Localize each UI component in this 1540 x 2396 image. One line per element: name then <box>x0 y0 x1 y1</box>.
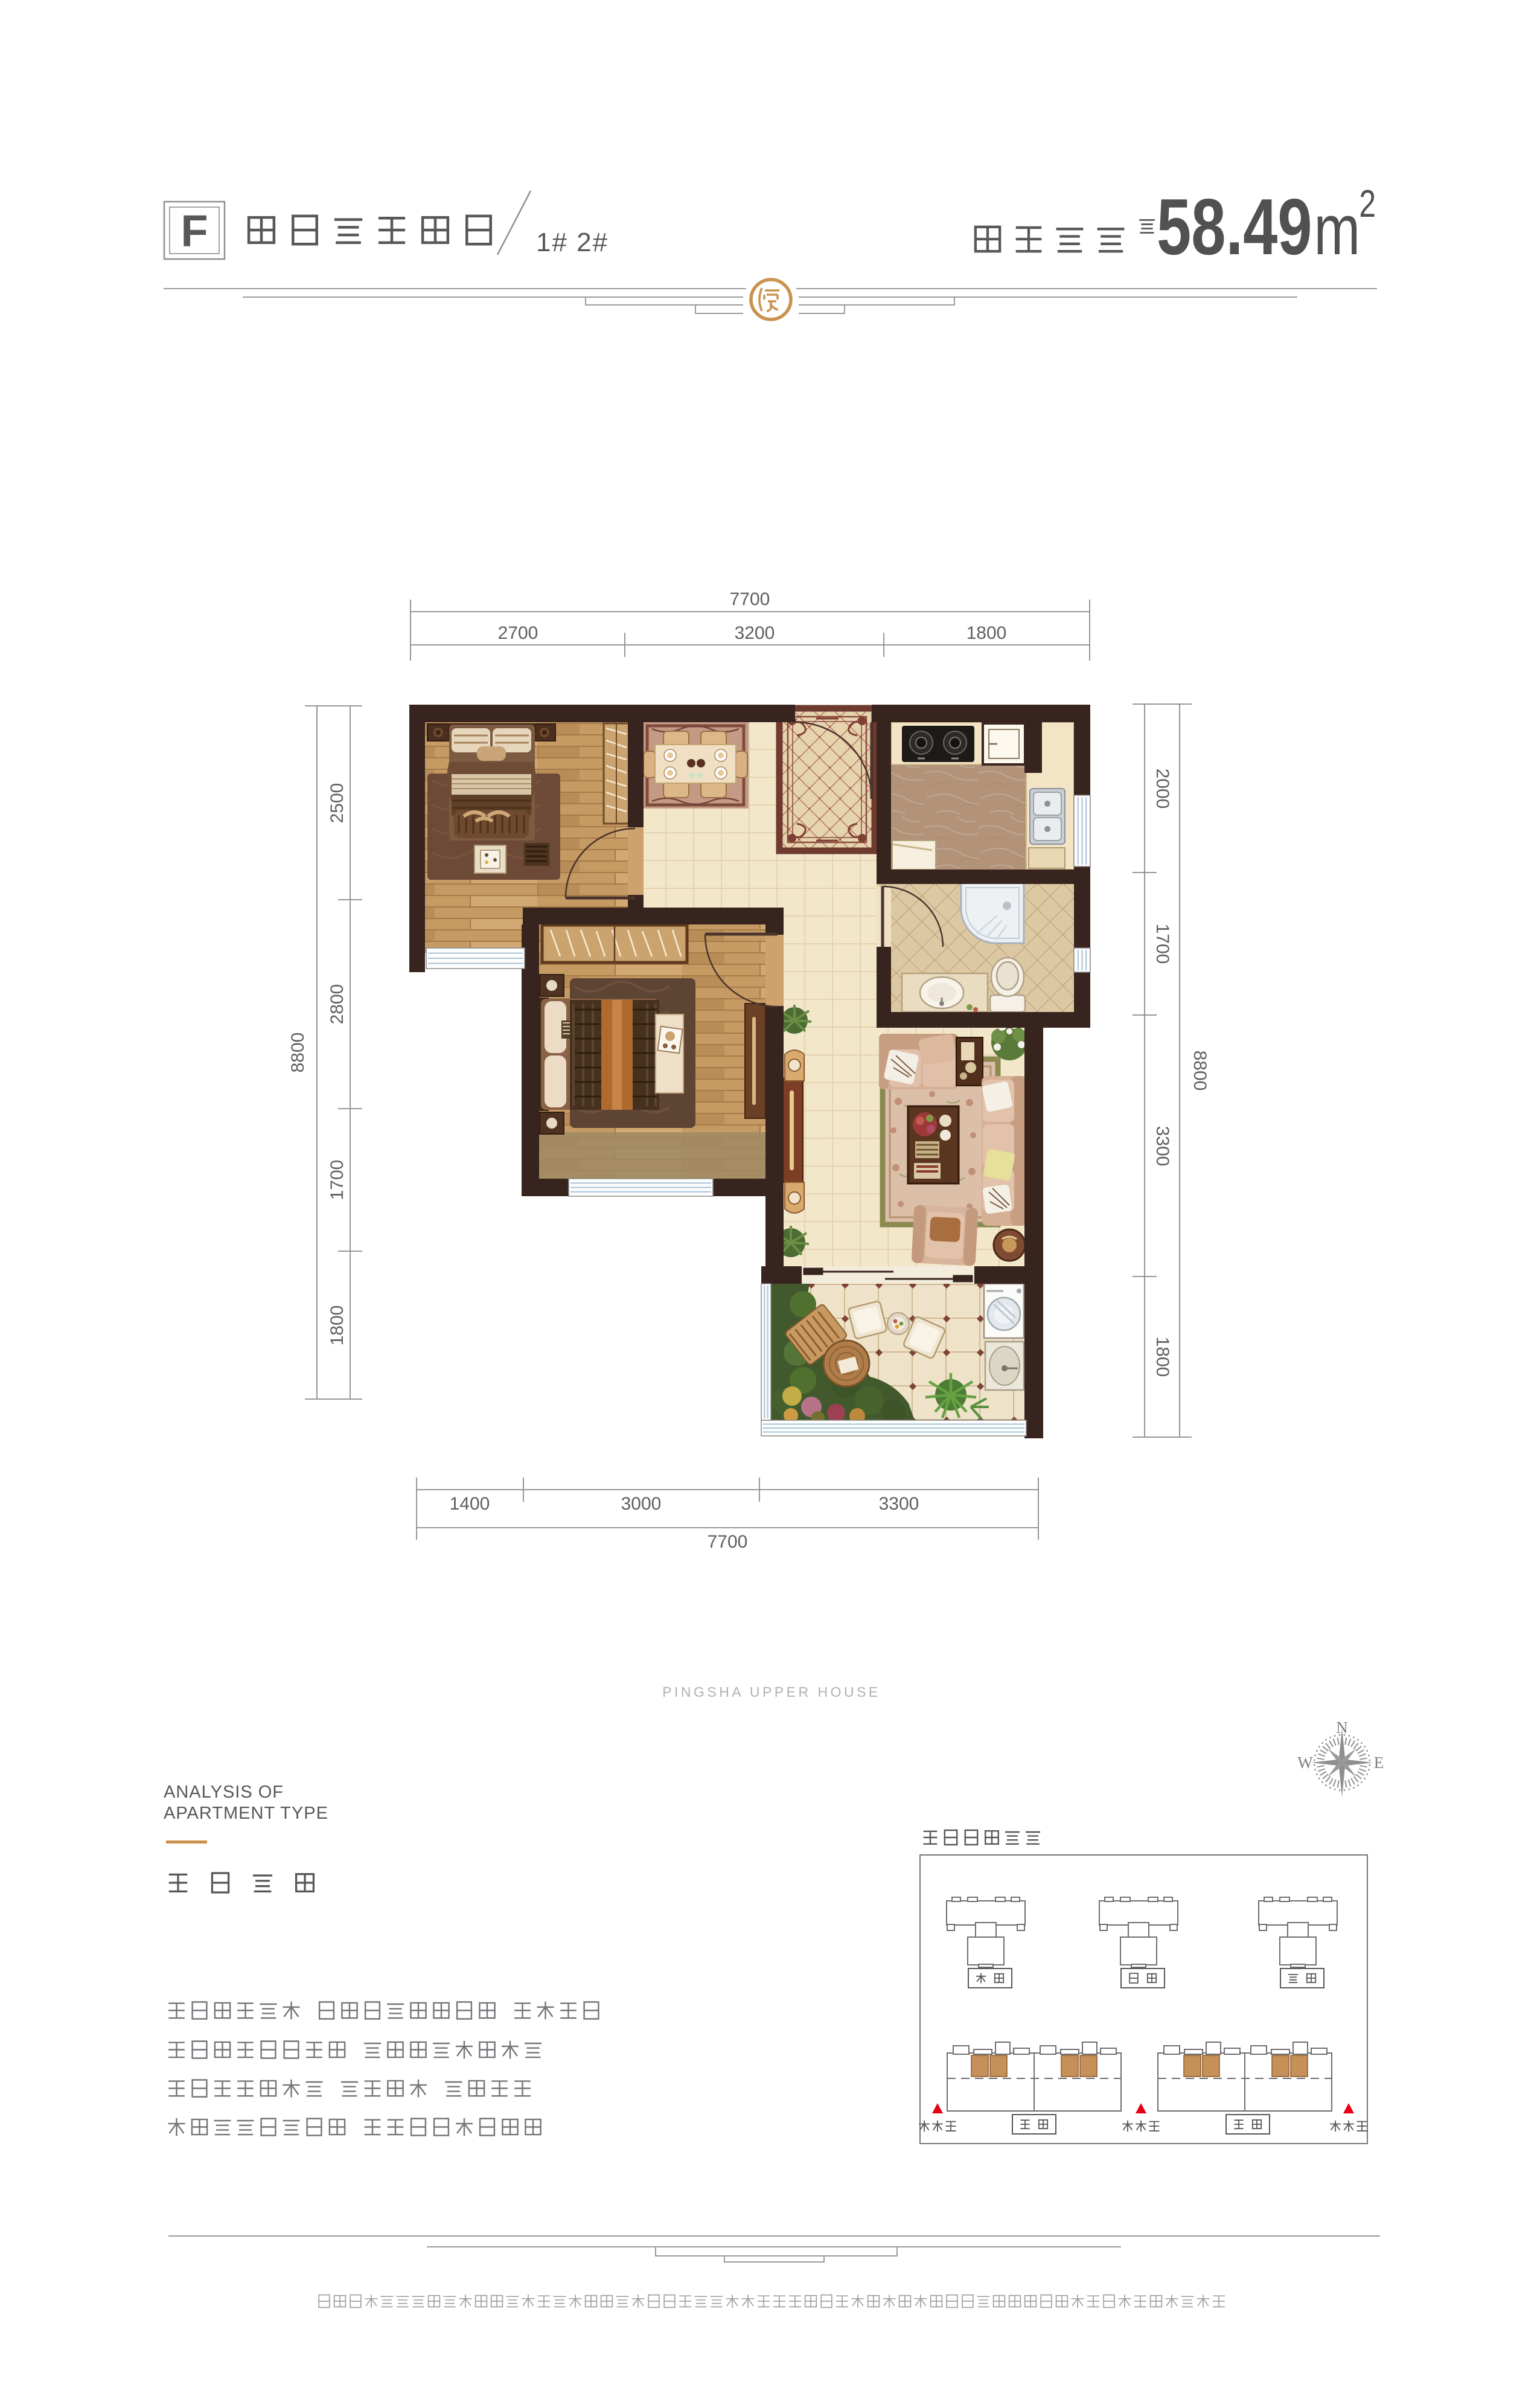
svg-text:1800: 1800 <box>966 623 1007 643</box>
svg-text:F: F <box>181 206 208 256</box>
svg-text:3300: 3300 <box>1152 1126 1172 1167</box>
svg-text:8800: 8800 <box>1190 1051 1210 1091</box>
svg-text:ANALYSIS OF: ANALYSIS OF <box>164 1783 284 1802</box>
svg-text:E: E <box>1374 1754 1384 1772</box>
svg-text:58.49: 58.49 <box>1157 183 1312 272</box>
svg-text:2000: 2000 <box>1152 769 1172 809</box>
svg-text:1400: 1400 <box>450 1494 490 1514</box>
svg-text:APARTMENT TYPE: APARTMENT TYPE <box>164 1804 328 1823</box>
svg-text:2800: 2800 <box>327 984 347 1025</box>
svg-text:7700: 7700 <box>708 1532 748 1552</box>
svg-text:7700: 7700 <box>730 589 770 609</box>
svg-text:2: 2 <box>1359 182 1376 225</box>
svg-text:m: m <box>1314 190 1361 270</box>
svg-text:1700: 1700 <box>1152 924 1172 964</box>
svg-text:W: W <box>1297 1754 1313 1772</box>
svg-text:3200: 3200 <box>735 623 775 643</box>
svg-text:N: N <box>1336 1719 1348 1737</box>
svg-text:3300: 3300 <box>879 1494 919 1514</box>
svg-text:2700: 2700 <box>498 623 538 643</box>
svg-text:3000: 3000 <box>621 1494 662 1514</box>
svg-text:1800: 1800 <box>1152 1337 1172 1377</box>
svg-text:2500: 2500 <box>327 783 347 824</box>
svg-text:8800: 8800 <box>288 1033 308 1073</box>
svg-text:1700: 1700 <box>327 1160 347 1200</box>
svg-text:1800: 1800 <box>327 1305 347 1346</box>
svg-text:1# 2#: 1# 2# <box>536 228 609 257</box>
svg-text:PINGSHA UPPER HOUSE: PINGSHA UPPER HOUSE <box>662 1684 881 1700</box>
